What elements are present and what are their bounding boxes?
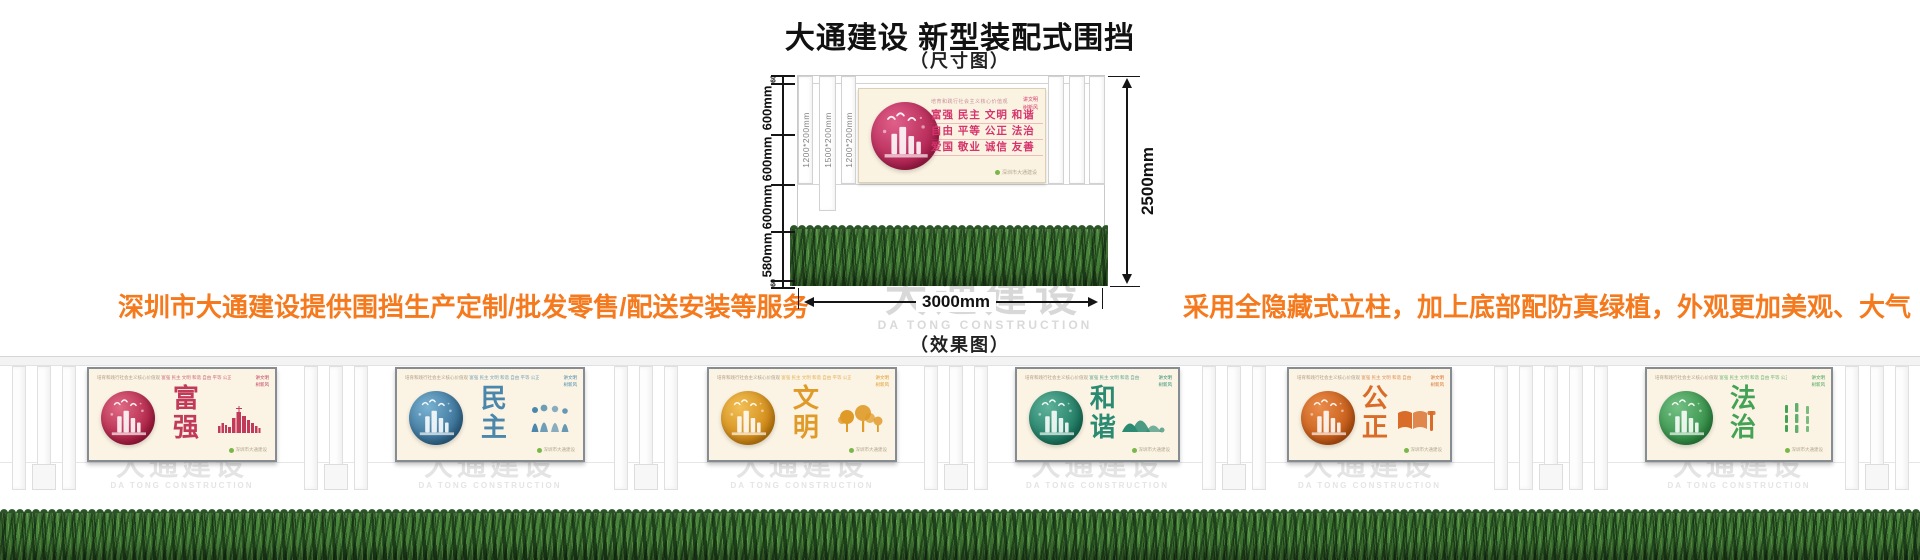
effect-fence-post-notch <box>32 464 56 490</box>
green-dot-icon <box>849 448 854 453</box>
dim-post-right-2 <box>1069 76 1085 184</box>
dim-fence-rail <box>797 184 1105 185</box>
effect-value-panel: 培育和践行社会主义核心价值观 富强 民主 文明 和谐 自由 平等 公正 法治 爱… <box>395 367 585 462</box>
papercut-circle-art <box>721 391 775 445</box>
effect-fence-post <box>304 366 318 490</box>
panel-header-slogan: 培育和践行社会主义核心价值观 富强 民主 文明 和谐 自由 平等 公正 法治 爱… <box>1297 375 1413 381</box>
dim-left-line <box>782 75 784 287</box>
dim-seg-600-3: 600mm <box>760 185 775 230</box>
effect-fence-post <box>1494 366 1508 490</box>
panel-header-slogan: 培育和践行社会主义核心价值观 富强 民主 文明 和谐 自由 平等 公正 法治 爱… <box>1025 375 1141 381</box>
dimension-caption: （尺寸图） <box>0 47 1920 73</box>
papercut-circle-art <box>1029 391 1083 445</box>
effect-fence-post <box>664 366 678 490</box>
dim-seg-60-bottom: 60 <box>771 279 778 287</box>
dim-grass-strip <box>790 228 1108 286</box>
values-slogan: 培育和践行社会主义核心价值观 <box>931 98 1008 105</box>
effect-fence-post <box>1569 366 1583 490</box>
dim-seg-580: 580mm <box>760 233 775 278</box>
total-height-label: 2500mm <box>1138 147 1158 215</box>
dim-tick <box>771 184 795 186</box>
effect-fence-post-notch <box>944 464 968 490</box>
green-dot-icon <box>1785 448 1790 453</box>
values-art-panel: 培育和践行社会主义核心价值观 富强 民主 文明 和谐 自由 平等 公正 法治 爱… <box>858 88 1046 183</box>
mountains-icon <box>1120 407 1166 438</box>
effect-fence-post-notch <box>324 464 348 490</box>
panel-value-title: 公正 <box>1360 384 1390 441</box>
effect-fence-post <box>614 366 628 490</box>
dim-post-right-3 <box>1089 76 1105 184</box>
effect-caption: （效果图） <box>0 331 1920 357</box>
green-dot-icon <box>995 170 1000 175</box>
values-corner-slogan: 讲文明 树新风 <box>1023 97 1038 112</box>
panel-header-slogan: 培育和践行社会主义核心价值观 富强 民主 文明 和谐 自由 平等 公正 法治 爱… <box>717 375 851 381</box>
green-dot-icon <box>229 448 234 453</box>
effect-fence-post <box>924 366 938 490</box>
effect-fence-post <box>354 366 368 490</box>
promo-left-text: 深圳市大通建设提供围挡生产定制/批发零售/配送安装等服务 <box>118 287 808 324</box>
post-size-label-2: 1500*200mm <box>823 112 833 168</box>
effect-fence-post <box>1594 366 1608 490</box>
effect-value-panel: 培育和践行社会主义核心价值观 富强 民主 文明 和谐 自由 平等 公正 法治 爱… <box>1287 367 1452 462</box>
effect-fence-top-band <box>0 356 1920 366</box>
effect-value-panel: 培育和践行社会主义核心价值观 富强 民主 文明 和谐 自由 平等 公正 法治 爱… <box>1645 367 1833 462</box>
effect-fence-post-notch <box>1222 464 1246 490</box>
panel-footer: 深圳市大通建设 <box>849 447 888 453</box>
poster: 大通建设 新型装配式围挡 （尺寸图） 深圳市大通建设提供围挡生产定制/批发零售/… <box>0 0 1920 560</box>
panel-header-slogan: 培育和践行社会主义核心价值观 富强 民主 文明 和谐 自由 平等 公正 法治 爱… <box>97 375 231 381</box>
papercut-circle-art <box>101 391 155 445</box>
dim-height-arrow <box>1126 82 1128 280</box>
total-width-label: 3000mm <box>916 292 996 312</box>
panel-footer: 深圳市大通建设 <box>1785 447 1824 453</box>
green-dot-icon <box>537 448 542 453</box>
papercut-circle-art <box>1301 391 1355 445</box>
effect-fence-post-notch <box>634 464 658 490</box>
papercut-circle-art <box>1659 391 1713 445</box>
bamboo-icon <box>1779 403 1819 438</box>
effect-value-panel: 培育和践行社会主义核心价值观 富强 民主 文明 和谐 自由 平等 公正 法治 爱… <box>707 367 897 462</box>
post-size-label-3: 1200*200mm <box>844 112 854 168</box>
panel-footer: 深圳市大通建设 <box>1404 447 1443 453</box>
watermark-en: DA TONG CONSTRUCTION <box>835 318 1135 332</box>
panel-corner-slogan: 讲文明树新风 <box>1812 375 1826 389</box>
green-dot-icon <box>1132 448 1137 453</box>
effect-fence-post <box>1895 366 1909 490</box>
panel-corner-slogan: 讲文明树新风 <box>1159 375 1173 389</box>
promo-right-text: 采用全隐藏式立柱，加上底部配防真绿植，外观更加美观、大气 <box>1183 287 1911 324</box>
values-row-3: 爱国 敬业 诚信 友善 <box>931 140 1043 156</box>
values-footer: 深圳市大通建设 <box>995 169 1037 176</box>
panel-header-slogan: 培育和践行社会主义核心价值观 富强 民主 文明 和谐 自由 平等 公正 法治 爱… <box>1655 375 1787 381</box>
panel-footer: 深圳市大通建设 <box>229 447 268 453</box>
dim-tick <box>771 287 795 289</box>
people-group-icon <box>529 403 571 438</box>
effect-fence-post <box>12 366 26 490</box>
dim-tick <box>771 134 795 136</box>
panel-footer: 深圳市大通建设 <box>1132 447 1171 453</box>
panel-header-slogan: 培育和践行社会主义核心价值观 富强 民主 文明 和谐 自由 平等 公正 法治 爱… <box>405 375 539 381</box>
dim-tick <box>771 231 795 233</box>
post-size-label-1: 1200*200mm <box>801 112 811 168</box>
effect-fence-post <box>1519 366 1533 490</box>
panel-value-title: 民主 <box>479 384 509 441</box>
book-gavel-icon <box>1394 405 1438 438</box>
panel-corner-slogan: 讲文明树新风 <box>1431 375 1445 389</box>
trees-icon <box>837 403 883 438</box>
papercut-circle-art <box>871 102 939 170</box>
dim-tick <box>771 83 795 85</box>
panel-value-title: 文明 <box>791 384 821 441</box>
dim-post-right-1 <box>1048 76 1064 184</box>
values-rows: 富强 民主 文明 和谐 自由 平等 公正 法治 爱国 敬业 诚信 友善 <box>931 108 1043 156</box>
effect-value-panel: 培育和践行社会主义核心价值观 富强 民主 文明 和谐 自由 平等 公正 法治 爱… <box>87 367 277 462</box>
values-row-2: 自由 平等 公正 法治 <box>931 124 1043 140</box>
papercut-circle-art <box>409 391 463 445</box>
effect-fence-post-notch <box>1865 464 1889 490</box>
panel-corner-slogan: 讲文明树新风 <box>256 375 270 389</box>
city-skyline-icon <box>217 403 263 438</box>
panel-footer: 深圳市大通建设 <box>537 447 576 453</box>
dim-seg-600-2: 600mm <box>760 137 775 182</box>
effect-grass-strip <box>0 512 1920 560</box>
panel-value-title: 富强 <box>171 384 201 441</box>
panel-corner-slogan: 讲文明树新风 <box>564 375 578 389</box>
panel-value-title: 法治 <box>1728 384 1758 441</box>
dim-seg-600-1: 600mm <box>760 86 775 131</box>
dim-seg-60-top: 60 <box>771 75 778 83</box>
effect-value-panel: 培育和践行社会主义核心价值观 富强 民主 文明 和谐 自由 平等 公正 法治 爱… <box>1015 367 1180 462</box>
green-dot-icon <box>1404 448 1409 453</box>
panel-value-title: 和谐 <box>1088 384 1118 441</box>
effect-fence-post-notch <box>1539 464 1563 490</box>
panel-corner-slogan: 讲文明树新风 <box>876 375 890 389</box>
